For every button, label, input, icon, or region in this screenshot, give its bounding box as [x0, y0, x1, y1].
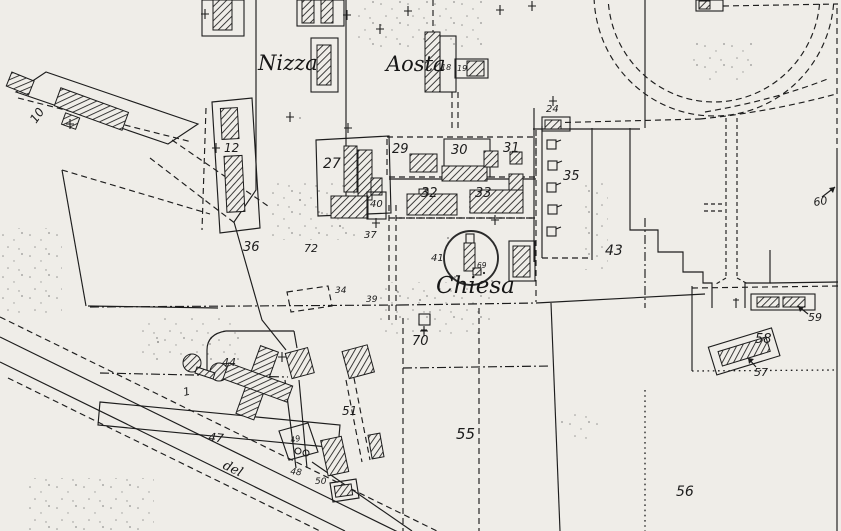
parcel-label-31: 31 [503, 141, 520, 156]
parcel-label-60: 60 [813, 194, 829, 209]
parcel-label-39: 39 [366, 295, 378, 305]
parcel-label-43: 43 [605, 243, 623, 259]
parcel-label-34: 34 [335, 286, 347, 296]
parcel-label-32: 32 [421, 186, 438, 201]
parcel-label-51: 51 [342, 404, 357, 418]
parcel-label-30: 30 [451, 143, 468, 158]
parcel-label-37: 37 [364, 230, 377, 241]
parcel-label-12: 12 [224, 141, 239, 155]
scanned-map-page: Nizza Aosta Chiesa del 10 12 18 19 24 27… [0, 0, 841, 531]
parcel-label-55: 55 [456, 425, 475, 443]
cadastral-map: Nizza Aosta Chiesa del 10 12 18 19 24 27… [0, 0, 841, 531]
parcel-label-33: 33 [475, 186, 492, 201]
parcel-label-41: 41 [431, 253, 444, 264]
parcel-label-19: 19 [457, 64, 467, 73]
parcel-label-35: 35 [563, 169, 580, 184]
parcel-label-27: 27 [323, 156, 341, 172]
parcel-label-24: 24 [546, 104, 559, 115]
parcel-label-69: 69 [477, 261, 487, 270]
parcel-label-47: 47 [208, 430, 225, 446]
parcel-label-59: 59 [808, 311, 822, 324]
street-label-aosta: Aosta [384, 52, 446, 76]
parcel-label-70: 70 [412, 334, 429, 349]
parcel-label-40: 40 [370, 199, 383, 210]
parcel-label-29: 29 [392, 142, 409, 157]
parcel-label-57: 57 [754, 366, 768, 379]
street-label-nizza: Nizza [257, 51, 318, 75]
parcel-label-72: 72 [304, 242, 318, 255]
parcel-label-56: 56 [676, 484, 694, 500]
parcel-label-50: 50 [315, 477, 327, 487]
parcel-label-48: 48 [290, 467, 303, 479]
parcel-label-44: 44 [222, 356, 236, 369]
parcel-label-58: 58 [755, 332, 772, 347]
street-label-chiesa: Chiesa [436, 273, 515, 299]
parcel-label-36: 36 [243, 240, 260, 255]
parcel-label-18: 18 [441, 63, 451, 72]
